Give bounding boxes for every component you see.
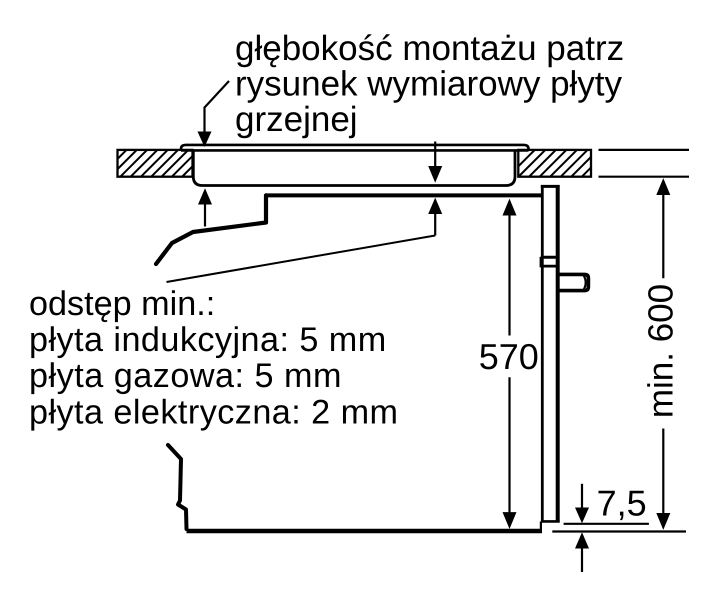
svg-text:7,5: 7,5 xyxy=(597,482,647,523)
svg-text:odstęp min.:: odstęp min.: xyxy=(29,285,215,323)
svg-text:płyta indukcyjna: 5 mm: płyta indukcyjna: 5 mm xyxy=(29,321,387,359)
svg-text:grzejnej: grzejnej xyxy=(235,100,358,139)
svg-text:rysunek wymiarowy płyty: rysunek wymiarowy płyty xyxy=(235,64,623,103)
svg-text:płyta gazowa: 5 mm: płyta gazowa: 5 mm xyxy=(29,357,342,395)
svg-text:min. 600: min. 600 xyxy=(642,284,681,418)
svg-text:głębokość montażu patrz: głębokość montażu patrz xyxy=(235,29,624,68)
svg-text:570: 570 xyxy=(479,336,539,377)
svg-text:płyta elektryczna: 2 mm: płyta elektryczna: 2 mm xyxy=(29,393,398,431)
